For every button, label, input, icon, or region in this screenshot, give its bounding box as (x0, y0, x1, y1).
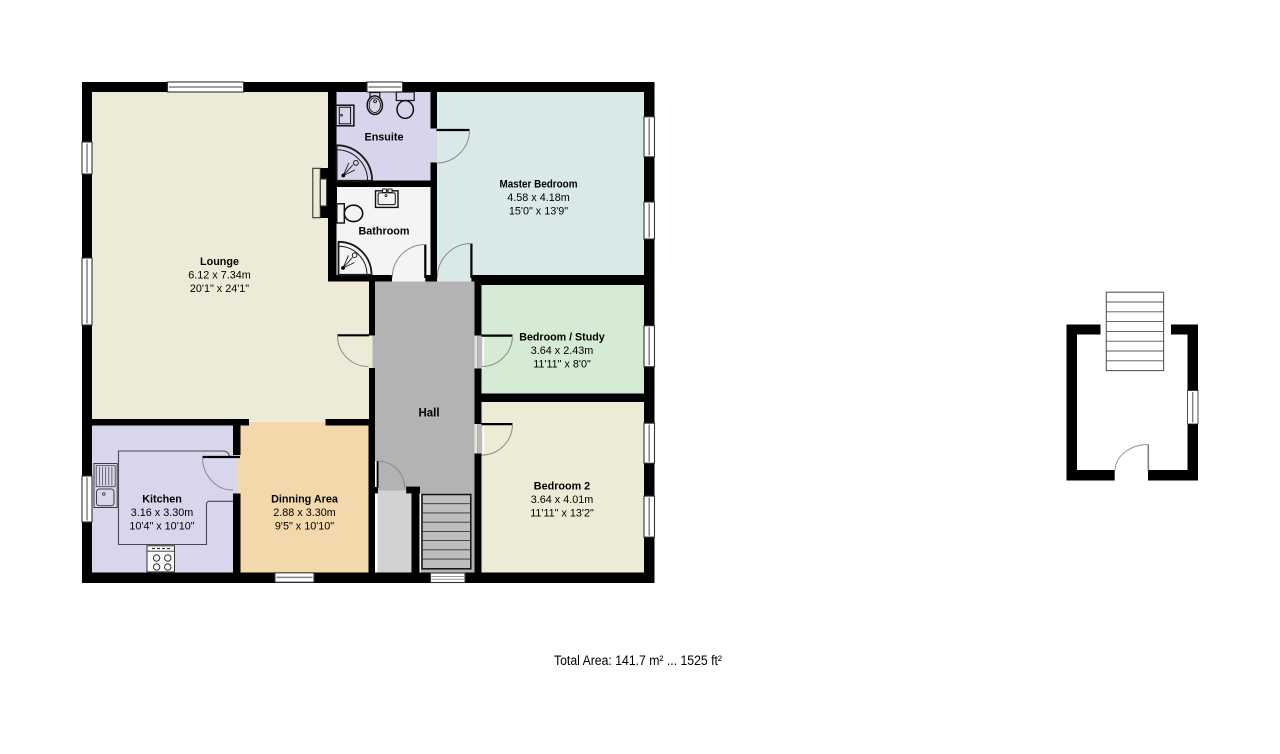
svg-text:3.16 x 3.30m: 3.16 x 3.30m (131, 507, 193, 519)
svg-text:Kitchen: Kitchen (142, 494, 182, 506)
svg-text:2.88 x 3.30m: 2.88 x 3.30m (273, 507, 335, 519)
svg-text:Ensuite: Ensuite (365, 132, 404, 144)
svg-text:4.58 x 4.18m: 4.58 x 4.18m (507, 192, 569, 204)
svg-text:Total Area: 141.7 m² ... 1525: Total Area: 141.7 m² ... 1525 ft² (554, 653, 722, 668)
svg-text:11'11" x 8'0": 11'11" x 8'0" (533, 359, 591, 371)
svg-text:Lounge: Lounge (200, 256, 239, 268)
svg-text:Bathroom: Bathroom (359, 226, 410, 238)
svg-text:Dinning Area: Dinning Area (271, 494, 339, 506)
svg-text:20'1" x 24'1": 20'1" x 24'1" (190, 283, 249, 295)
svg-text:6.12 x 7.34m: 6.12 x 7.34m (188, 270, 250, 282)
svg-text:3.64 x 4.01m: 3.64 x 4.01m (531, 494, 593, 506)
svg-text:Bedroom / Study: Bedroom / Study (519, 332, 605, 344)
svg-text:10'4" x 10'10": 10'4" x 10'10" (129, 521, 194, 533)
svg-text:9'5" x 10'10": 9'5" x 10'10" (275, 521, 334, 533)
svg-text:Bedroom 2: Bedroom 2 (534, 481, 590, 493)
svg-text:3.64 x 2.43m: 3.64 x 2.43m (531, 345, 593, 357)
svg-text:15'0" x 13'9": 15'0" x 13'9" (509, 206, 568, 218)
svg-text:11'11" x 13'2": 11'11" x 13'2" (530, 508, 594, 520)
svg-text:Master Bedroom: Master Bedroom (500, 179, 578, 191)
svg-text:Hall: Hall (418, 408, 439, 420)
